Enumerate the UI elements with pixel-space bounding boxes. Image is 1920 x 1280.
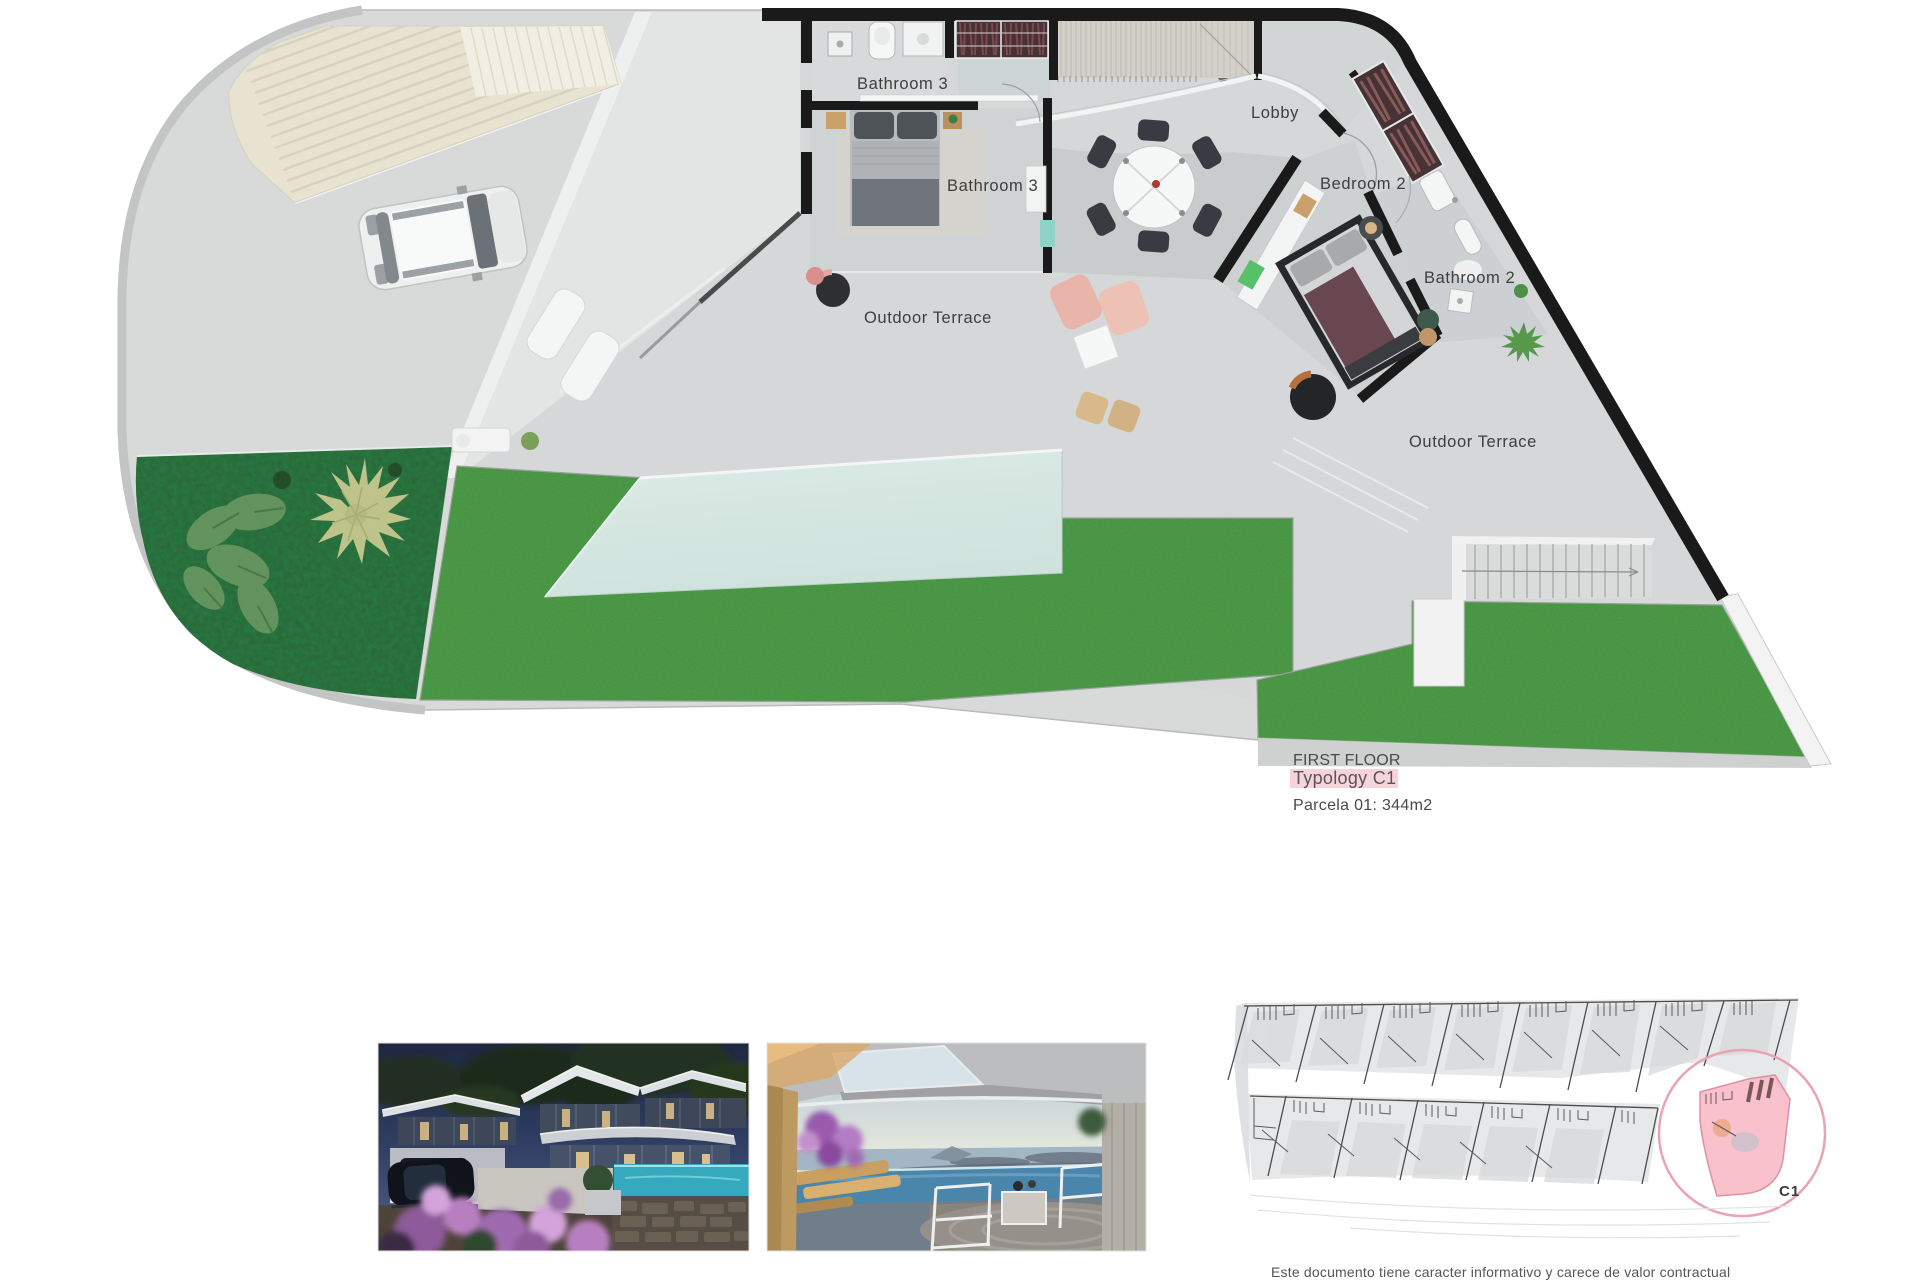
svg-text:Outdoor Terrace: Outdoor Terrace bbox=[1409, 433, 1537, 451]
svg-text:Outdoor Terrace: Outdoor Terrace bbox=[864, 309, 992, 327]
svg-text:Typology C1: Typology C1 bbox=[1293, 768, 1396, 788]
svg-text:C1: C1 bbox=[1779, 1183, 1800, 1200]
svg-text:FIRST FLOOR: FIRST FLOOR bbox=[1293, 752, 1401, 769]
svg-text:Bathroom 3: Bathroom 3 bbox=[857, 75, 948, 93]
svg-text:Parcela 01: 344m2: Parcela 01: 344m2 bbox=[1293, 797, 1432, 814]
svg-text:Lobby: Lobby bbox=[1251, 104, 1299, 122]
svg-text:Bathroom 3: Bathroom 3 bbox=[947, 177, 1038, 195]
svg-text:Bathroom 2: Bathroom 2 bbox=[1424, 269, 1515, 287]
svg-text:Este documento tiene caracter: Este documento tiene caracter informativ… bbox=[1271, 1264, 1730, 1280]
svg-text:Bedroom 2: Bedroom 2 bbox=[1320, 175, 1406, 193]
